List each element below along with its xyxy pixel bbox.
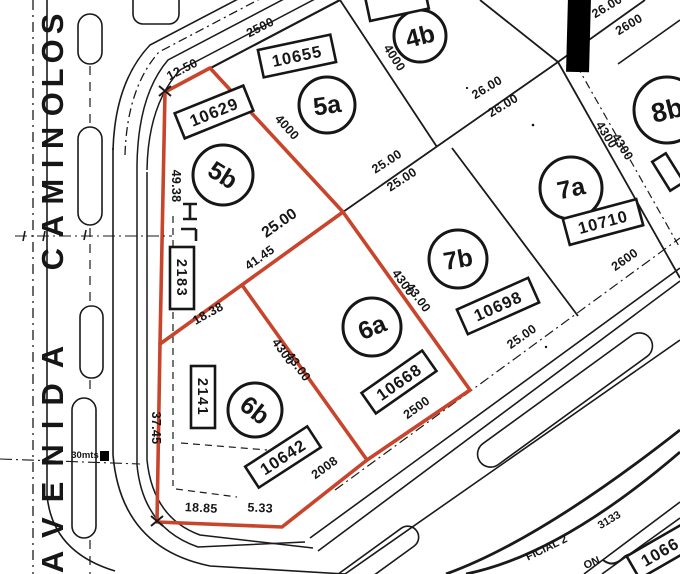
street-name-camino: CAMINO [35, 82, 70, 271]
dim-2500-pair-b: 25.00 [384, 165, 419, 195]
dim-41-45: 41.45 [242, 243, 277, 273]
fragment-ficial: FICIAL 2 [524, 533, 569, 563]
street-width-note: 30mts [71, 450, 98, 461]
scan-speck-3 [466, 87, 468, 89]
dimension-labels: 12.50 2500 4000 4000 25.00 25.00 26.00 2… [71, 0, 645, 516]
lot-circle-4b: 4b [394, 10, 446, 62]
station-tick-line-lower [0, 459, 140, 464]
dim-49-38: 49.38 [169, 170, 183, 203]
se-road-lines [310, 238, 680, 574]
lot-circle-5b: 5b [193, 145, 253, 205]
median-island-2 [78, 127, 102, 225]
dim-2600-topright-b: 2600 [613, 11, 645, 38]
fragment-on: ON [582, 555, 602, 572]
dim-2600-frontage: 2600 [609, 246, 641, 274]
lot5a-7b-boundary [343, 62, 558, 212]
dim-2600-pair-b: 26.00 [485, 91, 520, 120]
parcel-box-clipped-right [652, 153, 680, 190]
parcel-clipped-right-frame [652, 153, 680, 190]
lot-circle-5a: 5a [299, 77, 355, 133]
scan-speck-1 [532, 124, 535, 127]
street-name-vertical: AVENIDA CAMINO LOS [35, 9, 70, 573]
scan-speck-2 [545, 346, 547, 348]
parcel-box-10629: 10629 [175, 86, 254, 139]
sidewalk-corner-curve-2 [147, 460, 313, 548]
lot-circle-7b: 7b [429, 230, 487, 288]
lot-circle-6a: 6a [343, 298, 401, 356]
dim-25-00-bold: 25.00 [259, 205, 301, 241]
dim-25-00-frontage: 25.00 [504, 322, 539, 352]
dim-2600-pair-a: 26.00 [469, 73, 504, 102]
address-2141-number: 2141 [194, 378, 210, 416]
lot-7b-label: 7b [441, 243, 475, 276]
setback-dashed-south [176, 489, 237, 497]
lot-5a-label: 5a [311, 90, 344, 122]
se-road-median-island-clipped [313, 522, 423, 574]
address-2183-number: 2183 [173, 259, 189, 297]
station-blob-mark [100, 451, 109, 461]
dim-4300-mid-b: 43.00 [283, 349, 314, 384]
address-box-2183: 2183 [170, 247, 194, 309]
lot-circle-6b: 6b [228, 383, 282, 437]
lot4b-se-edge [480, 0, 558, 62]
parcel-box-10655: 10655 [258, 35, 336, 78]
dim-4300-cd-b: 43.00 [403, 280, 434, 315]
dim-18-38: 18.38 [190, 299, 225, 327]
lot-circle-8b: 8b [634, 77, 680, 143]
median-island-3 [80, 306, 103, 378]
plat-map-canvas: AVENIDA CAMINO LOS 5b 5a 4b 7b 7a 8b [0, 0, 680, 574]
cadastral-plat-map: AVENIDA CAMINO LOS 5b 5a 4b 7b 7a 8b [0, 0, 680, 574]
dim-18-85: 18.85 [184, 500, 217, 516]
setback-dashed-inner [181, 443, 267, 450]
dim-2008: 2008 [309, 454, 341, 482]
median-island-4 [72, 398, 96, 538]
median-island-1 [78, 14, 102, 64]
top-road-island-clipped [133, 0, 179, 24]
dim-5-33: 5.33 [247, 500, 273, 515]
street-name-los: LOS [35, 9, 70, 88]
address-box-2141: 2141 [191, 366, 215, 428]
monument-ibeam-symbol [183, 204, 197, 219]
dim-37-45: 37.45 [149, 412, 163, 445]
solid-black-bar [566, 0, 591, 72]
street-name-avenida: AVENIDA [35, 331, 70, 573]
monument-bracket-symbol [181, 229, 196, 241]
